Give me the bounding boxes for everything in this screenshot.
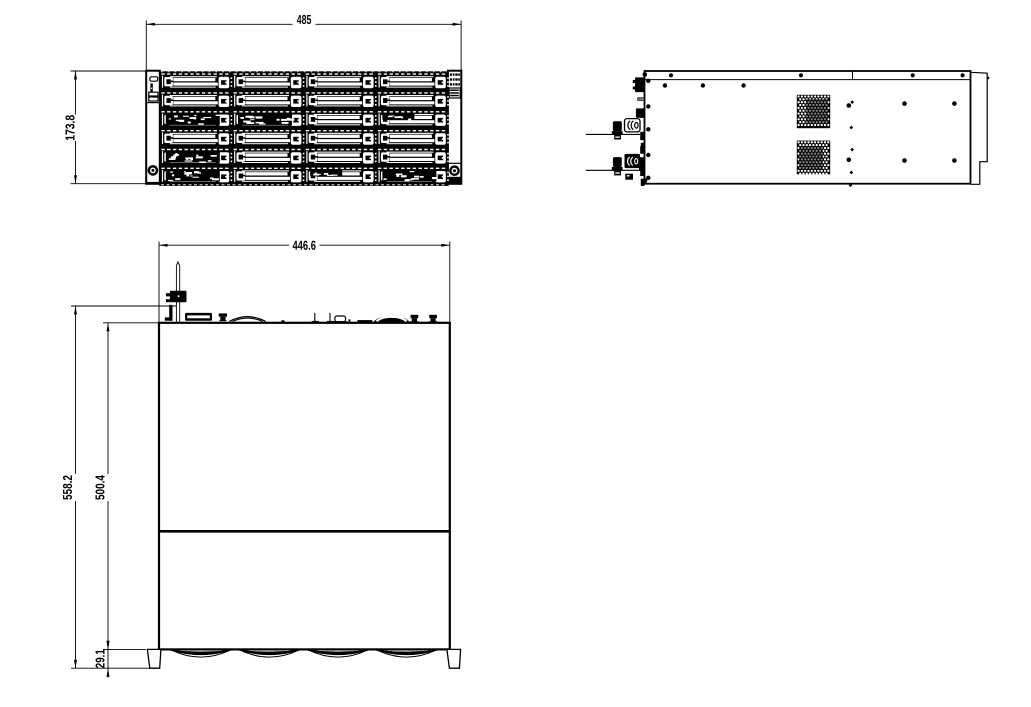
svg-text:446.6: 446.6 xyxy=(292,238,316,253)
svg-text:173.8: 173.8 xyxy=(63,115,78,141)
svg-text:500.4: 500.4 xyxy=(93,474,108,500)
svg-text:558.2: 558.2 xyxy=(60,475,75,500)
svg-text:485: 485 xyxy=(297,12,312,27)
svg-text:29.1: 29.1 xyxy=(93,649,108,668)
